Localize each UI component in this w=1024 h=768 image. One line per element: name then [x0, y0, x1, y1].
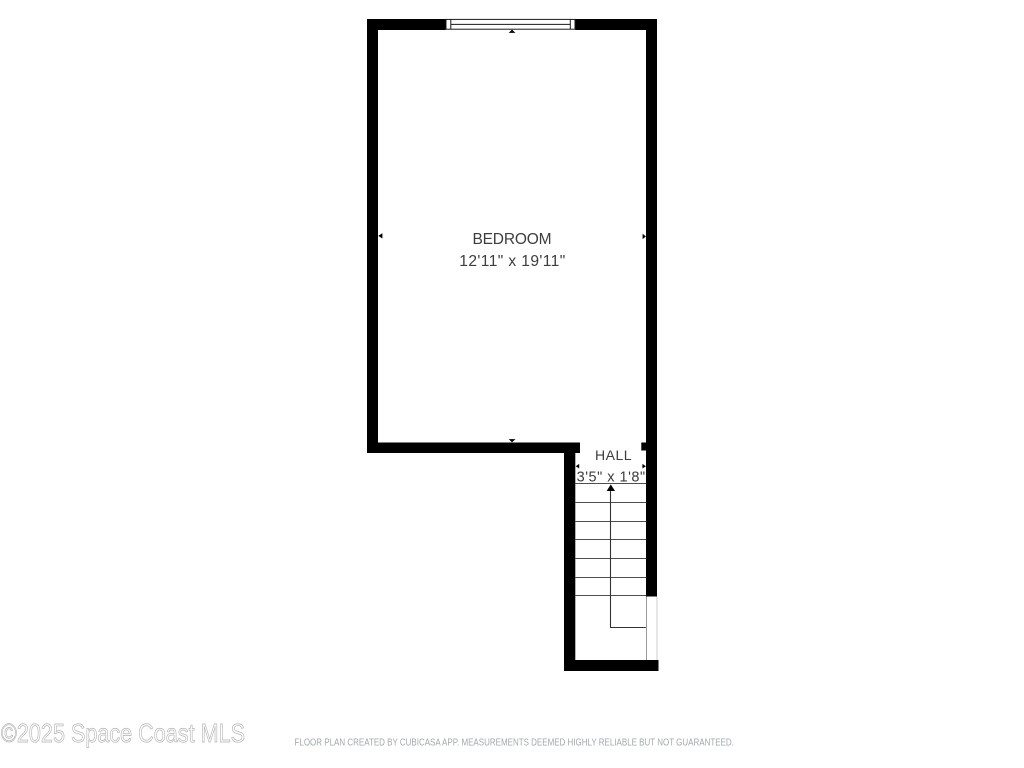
svg-text:3'5" x 1'8": 3'5" x 1'8": [577, 470, 646, 486]
svg-text:HALL: HALL: [595, 447, 632, 463]
svg-text:BEDROOM: BEDROOM: [473, 231, 552, 248]
svg-text:12'11" x 19'11": 12'11" x 19'11": [459, 253, 565, 270]
svg-text:©2025 Space Coast MLS: ©2025 Space Coast MLS: [1, 720, 245, 748]
svg-text:FLOOR PLAN CREATED BY CUBICASA: FLOOR PLAN CREATED BY CUBICASA APP. MEAS…: [295, 738, 734, 749]
